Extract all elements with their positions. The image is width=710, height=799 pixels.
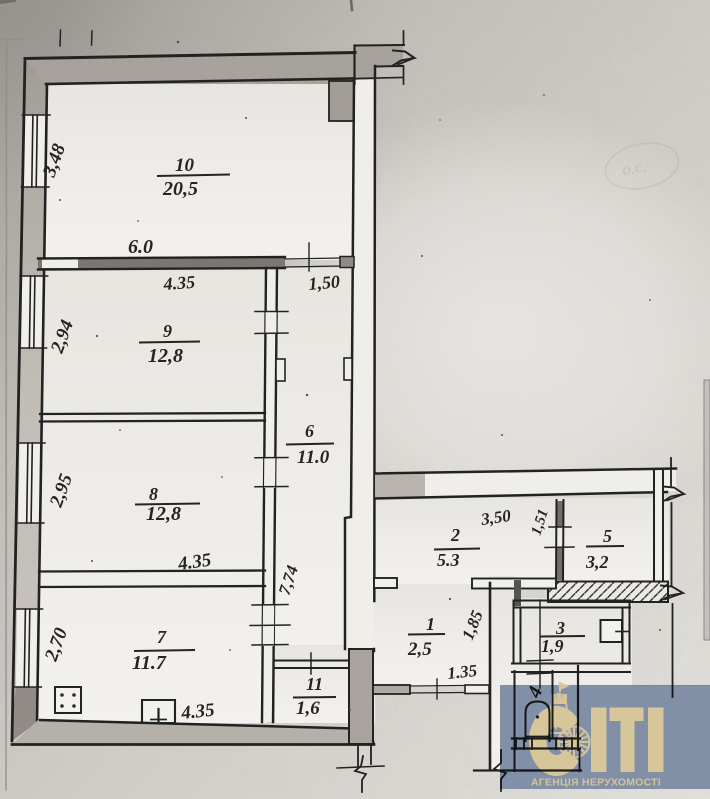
svg-text:10: 10 xyxy=(175,155,195,176)
svg-text:11.0: 11.0 xyxy=(297,447,330,468)
svg-text:1,9: 1,9 xyxy=(541,636,564,656)
svg-text:5.3: 5.3 xyxy=(437,550,460,570)
svg-text:1,6: 1,6 xyxy=(296,698,320,719)
svg-text:АГЕНЦІЯ НЕРУХОМОСТІ: АГЕНЦІЯ НЕРУХОМОСТІ xyxy=(531,778,661,789)
svg-text:1,50: 1,50 xyxy=(308,271,341,294)
svg-text:20,5: 20,5 xyxy=(162,178,198,200)
svg-text:5: 5 xyxy=(603,526,612,546)
svg-text:7: 7 xyxy=(157,627,167,647)
svg-text:2,5: 2,5 xyxy=(407,639,432,660)
svg-text:3,2: 3,2 xyxy=(585,552,609,572)
svg-text:9: 9 xyxy=(163,321,172,341)
svg-text:1.35: 1.35 xyxy=(446,661,478,683)
svg-text:4.35: 4.35 xyxy=(162,272,196,294)
svg-text:6: 6 xyxy=(305,421,314,441)
svg-text:12,8: 12,8 xyxy=(148,345,183,367)
svg-text:3: 3 xyxy=(555,618,565,638)
svg-text:2: 2 xyxy=(450,525,460,545)
svg-text:6.0: 6.0 xyxy=(128,236,153,258)
svg-text:11.7: 11.7 xyxy=(132,652,167,674)
svg-text:1: 1 xyxy=(426,614,435,634)
svg-text:12,8: 12,8 xyxy=(146,503,181,525)
svg-text:4.35: 4.35 xyxy=(179,700,216,725)
svg-text:11: 11 xyxy=(306,674,323,694)
svg-text:8: 8 xyxy=(149,484,158,504)
